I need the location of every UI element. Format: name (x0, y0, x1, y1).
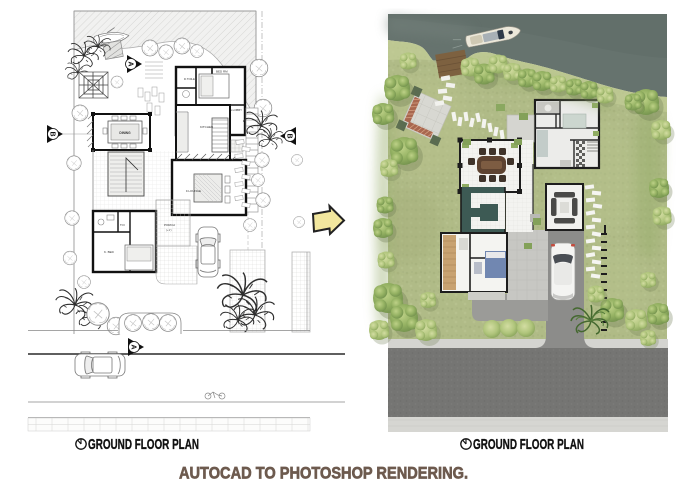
svg-text:F.LOUNGE: F.LOUNGE (186, 189, 201, 193)
svg-text:A: A (127, 61, 134, 66)
svg-text:(+1'): (+1') (166, 228, 172, 232)
svg-text:S.LOBBY: S.LOBBY (230, 108, 242, 112)
svg-text:TOI: TOI (120, 223, 125, 227)
svg-text:PORCH: PORCH (164, 223, 175, 227)
svg-text:DINING: DINING (119, 131, 131, 135)
svg-text:BED RM: BED RM (216, 70, 228, 74)
svg-text:B: B (49, 131, 56, 136)
svg-text:K. BED: K. BED (104, 250, 115, 254)
svg-text:KITCHEN: KITCHEN (200, 125, 213, 129)
svg-text:D.TOILET: D.TOILET (184, 77, 197, 81)
svg-text:GROUND FLOOR PLAN: GROUND FLOOR PLAN (473, 436, 584, 453)
svg-text:B: B (286, 133, 293, 138)
svg-text:AUTOCAD TO PHOTOSHOP RENDERING: AUTOCAD TO PHOTOSHOP RENDERING. (179, 464, 468, 483)
svg-text:A: A (130, 344, 137, 349)
svg-text:GROUND FLOOR PLAN: GROUND FLOOR PLAN (88, 436, 199, 453)
